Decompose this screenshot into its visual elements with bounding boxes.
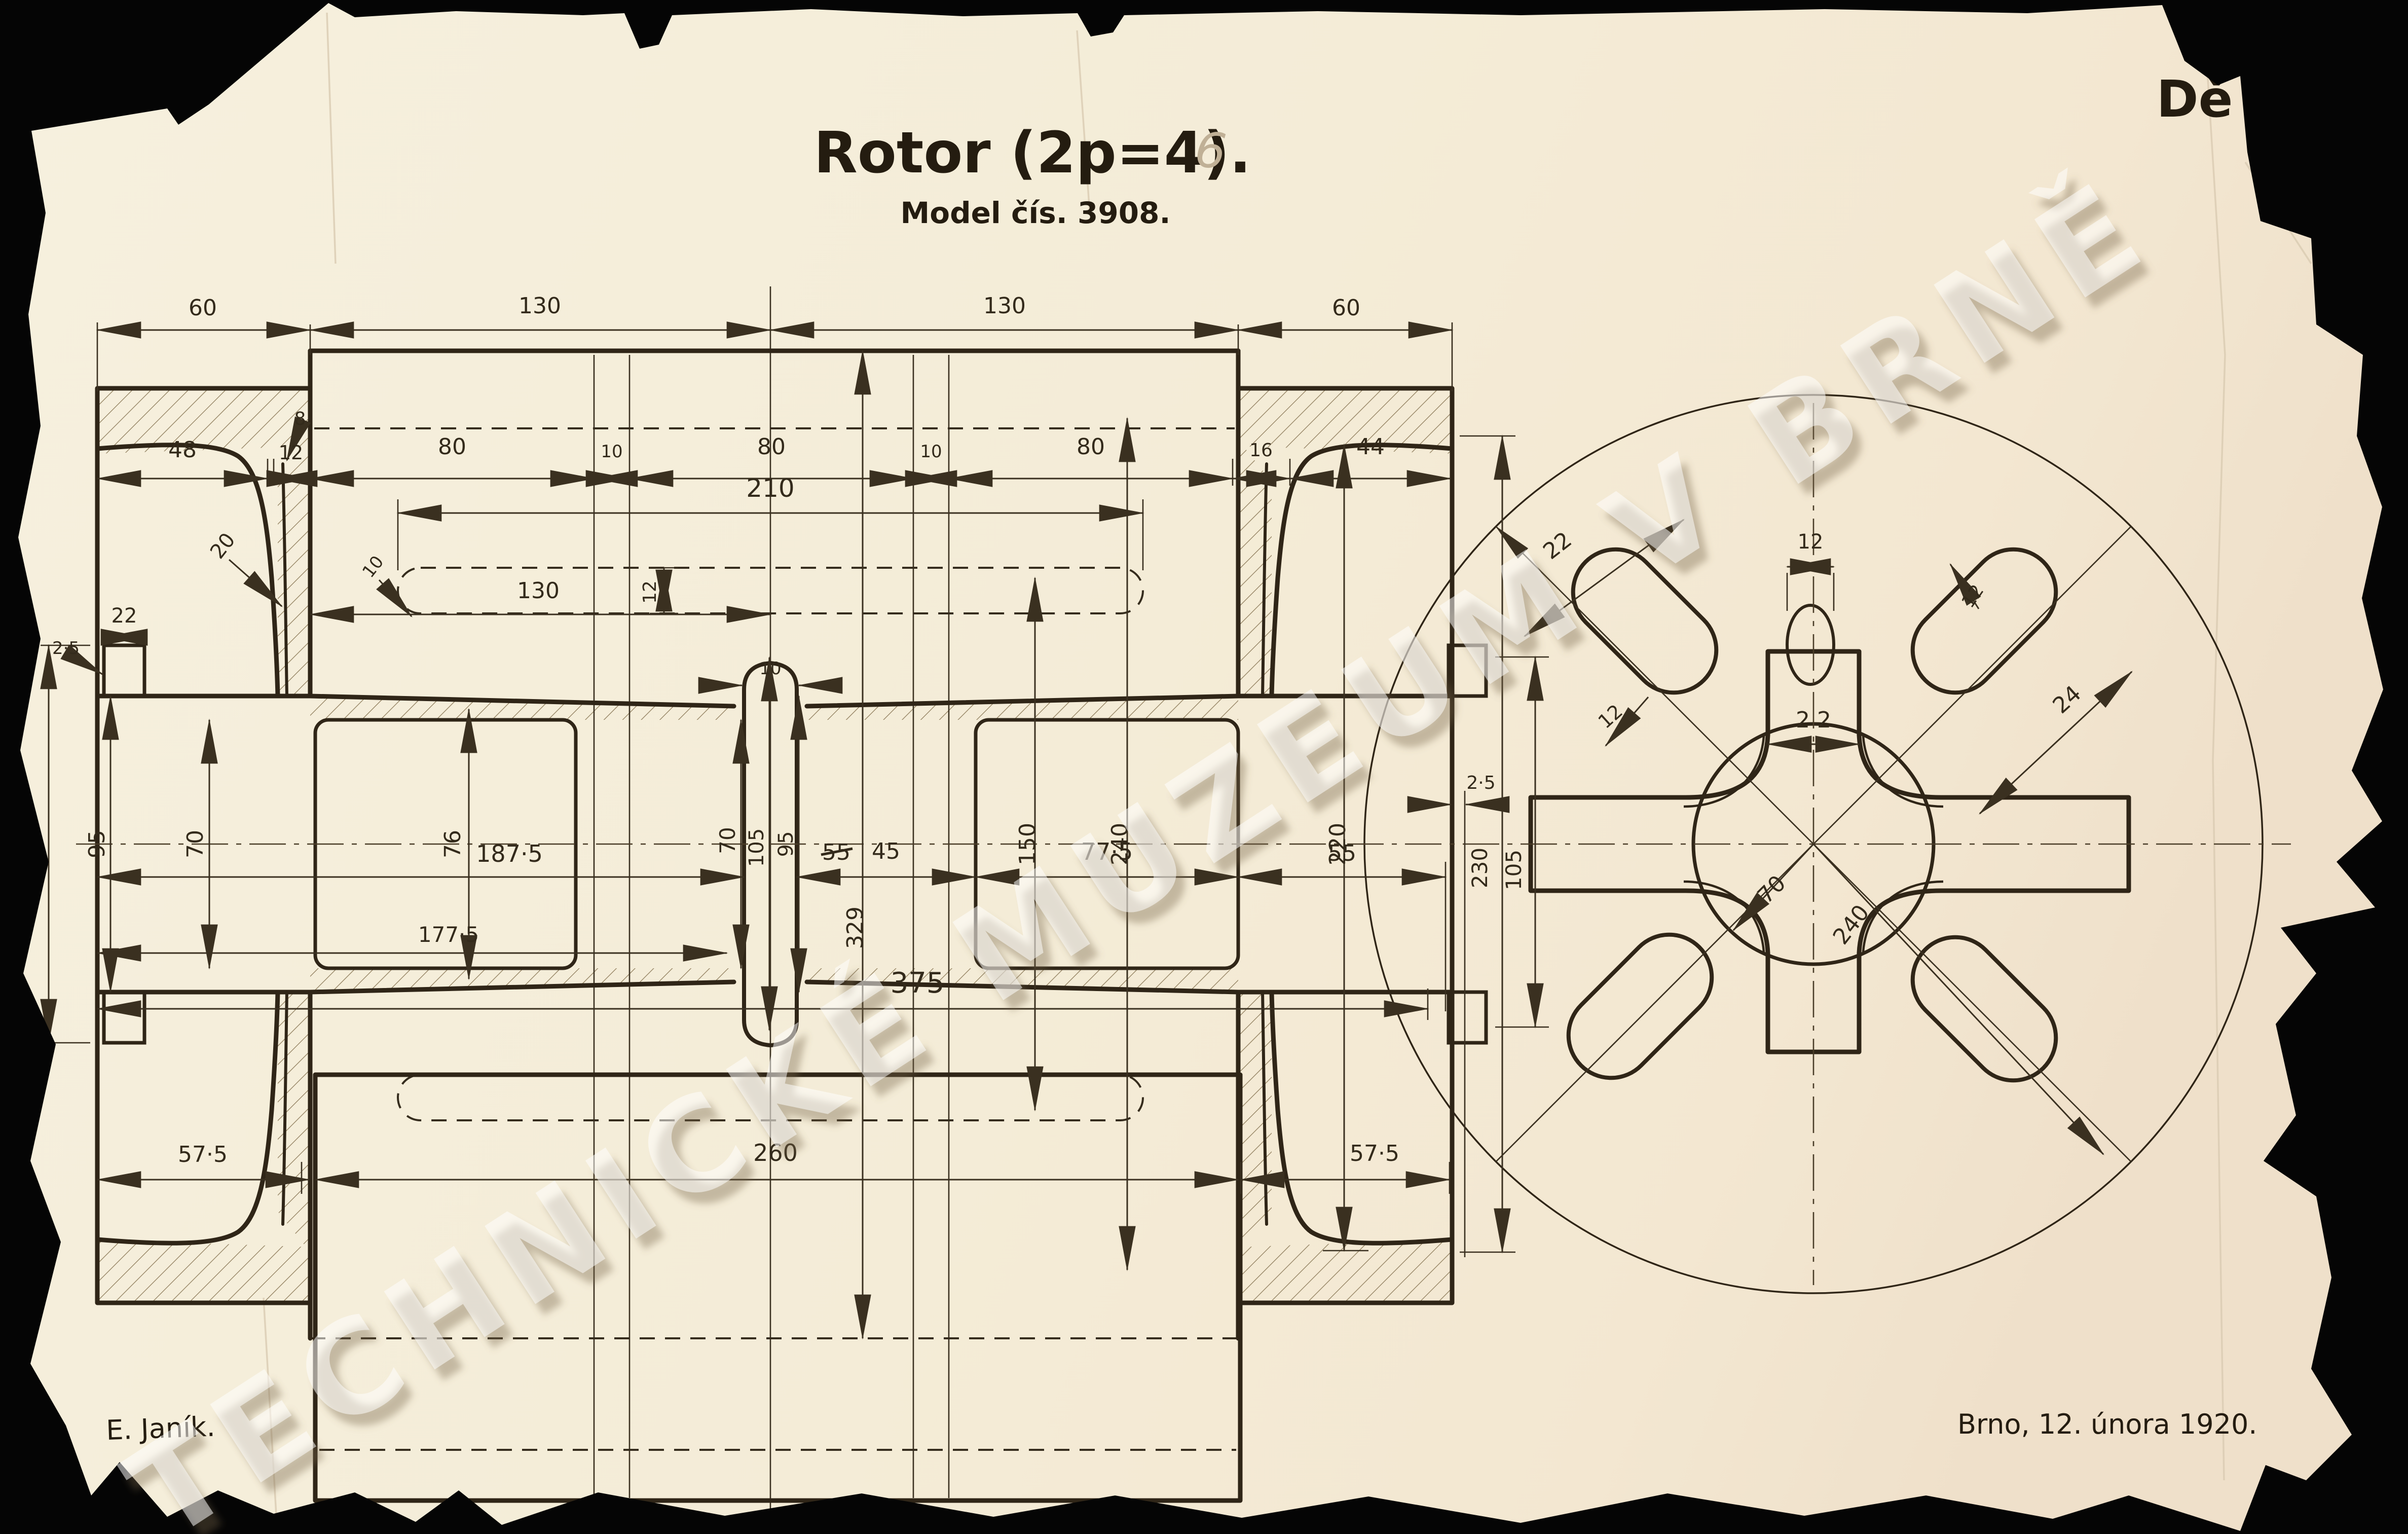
dimension-label: 16 — [1249, 440, 1273, 461]
dimension-label: 177·5 — [418, 922, 479, 947]
dimension-label: 329 — [842, 906, 868, 949]
dimension-label: 210 — [746, 473, 794, 503]
dimension-label: 2·5 — [52, 638, 80, 659]
dimension-label: 12 — [640, 580, 660, 604]
dimension-label: 44 — [1356, 434, 1385, 460]
scanned-blueprint: 6013013060488128010801080164421013012201… — [0, 0, 2408, 1534]
dimension-label: 130 — [517, 578, 560, 604]
dimension-label: 55 — [822, 839, 850, 865]
dimension-label: 187·5 — [476, 840, 543, 867]
drawing-subtitle: Model čís. 3908. — [901, 196, 1171, 230]
drawing-title: Rotor (2p=4). — [814, 120, 1251, 186]
dimension-label: 10 — [920, 442, 942, 462]
date-note: Brno, 12. února 1920. — [1957, 1408, 2257, 1440]
dimension-label: 12 — [279, 442, 303, 464]
dimension-label: 10 — [601, 442, 622, 462]
dimension-label: 230 — [1467, 848, 1492, 888]
dimension-label: 48 — [168, 437, 197, 463]
dimension-label: 22 — [112, 604, 137, 628]
dimension-label: 70 — [182, 830, 208, 858]
dimension-label: 57·5 — [178, 1142, 228, 1167]
blueprint-canvas: 6013013060488128010801080164421013012201… — [0, 0, 2408, 1534]
dimension-label: 57·5 — [1350, 1141, 1399, 1166]
dimension-label: 60 — [189, 295, 217, 321]
dimension-label: 2·5 — [1466, 773, 1495, 793]
dimension-label: 8 — [294, 409, 306, 429]
dimension-label: 10 — [759, 659, 781, 679]
dimension-label: 80 — [438, 434, 466, 460]
dimension-label: 105 — [1501, 850, 1526, 890]
dimension-label: 130 — [983, 293, 1026, 319]
dimension-label: 130 — [518, 293, 561, 319]
dimension-label: 95 — [84, 830, 110, 858]
dimension-label: 80 — [757, 434, 786, 460]
pencil-note: 6 — [1192, 121, 1229, 180]
dimension-label: 95 — [774, 831, 798, 857]
dimension-label: 105 — [745, 828, 768, 867]
dimension-label: 76 — [440, 830, 466, 858]
dimension-label: 70 — [715, 827, 740, 854]
dimension-label: 80 — [1077, 434, 1105, 460]
dimension-label: 2 2 — [1796, 707, 1831, 733]
dimension-label: 45 — [872, 838, 900, 864]
dimension-label: 60 — [1332, 295, 1360, 321]
